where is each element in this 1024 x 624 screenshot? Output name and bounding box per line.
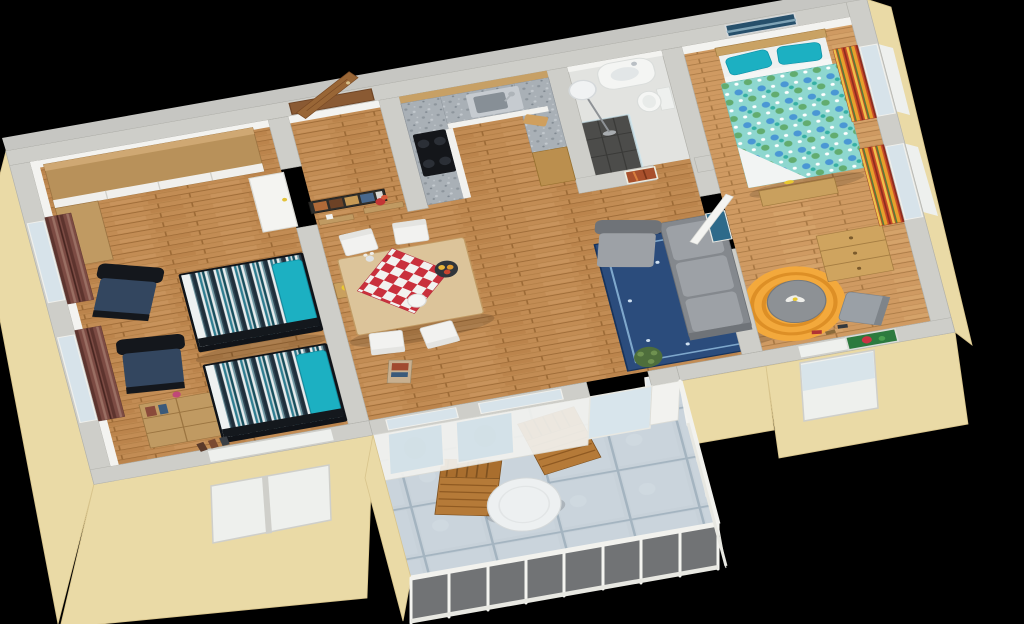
dining-chair [392, 219, 429, 245]
armchair [116, 333, 190, 394]
magazine [387, 360, 412, 383]
floorplan-canvas [0, 0, 1024, 624]
wall-face [650, 381, 680, 425]
armchair [592, 220, 662, 267]
dining-chair [369, 330, 405, 355]
bedroom-chair [838, 292, 890, 326]
floorplan-figure [0, 0, 1024, 624]
wall-bath-bottom-2 [694, 155, 714, 173]
